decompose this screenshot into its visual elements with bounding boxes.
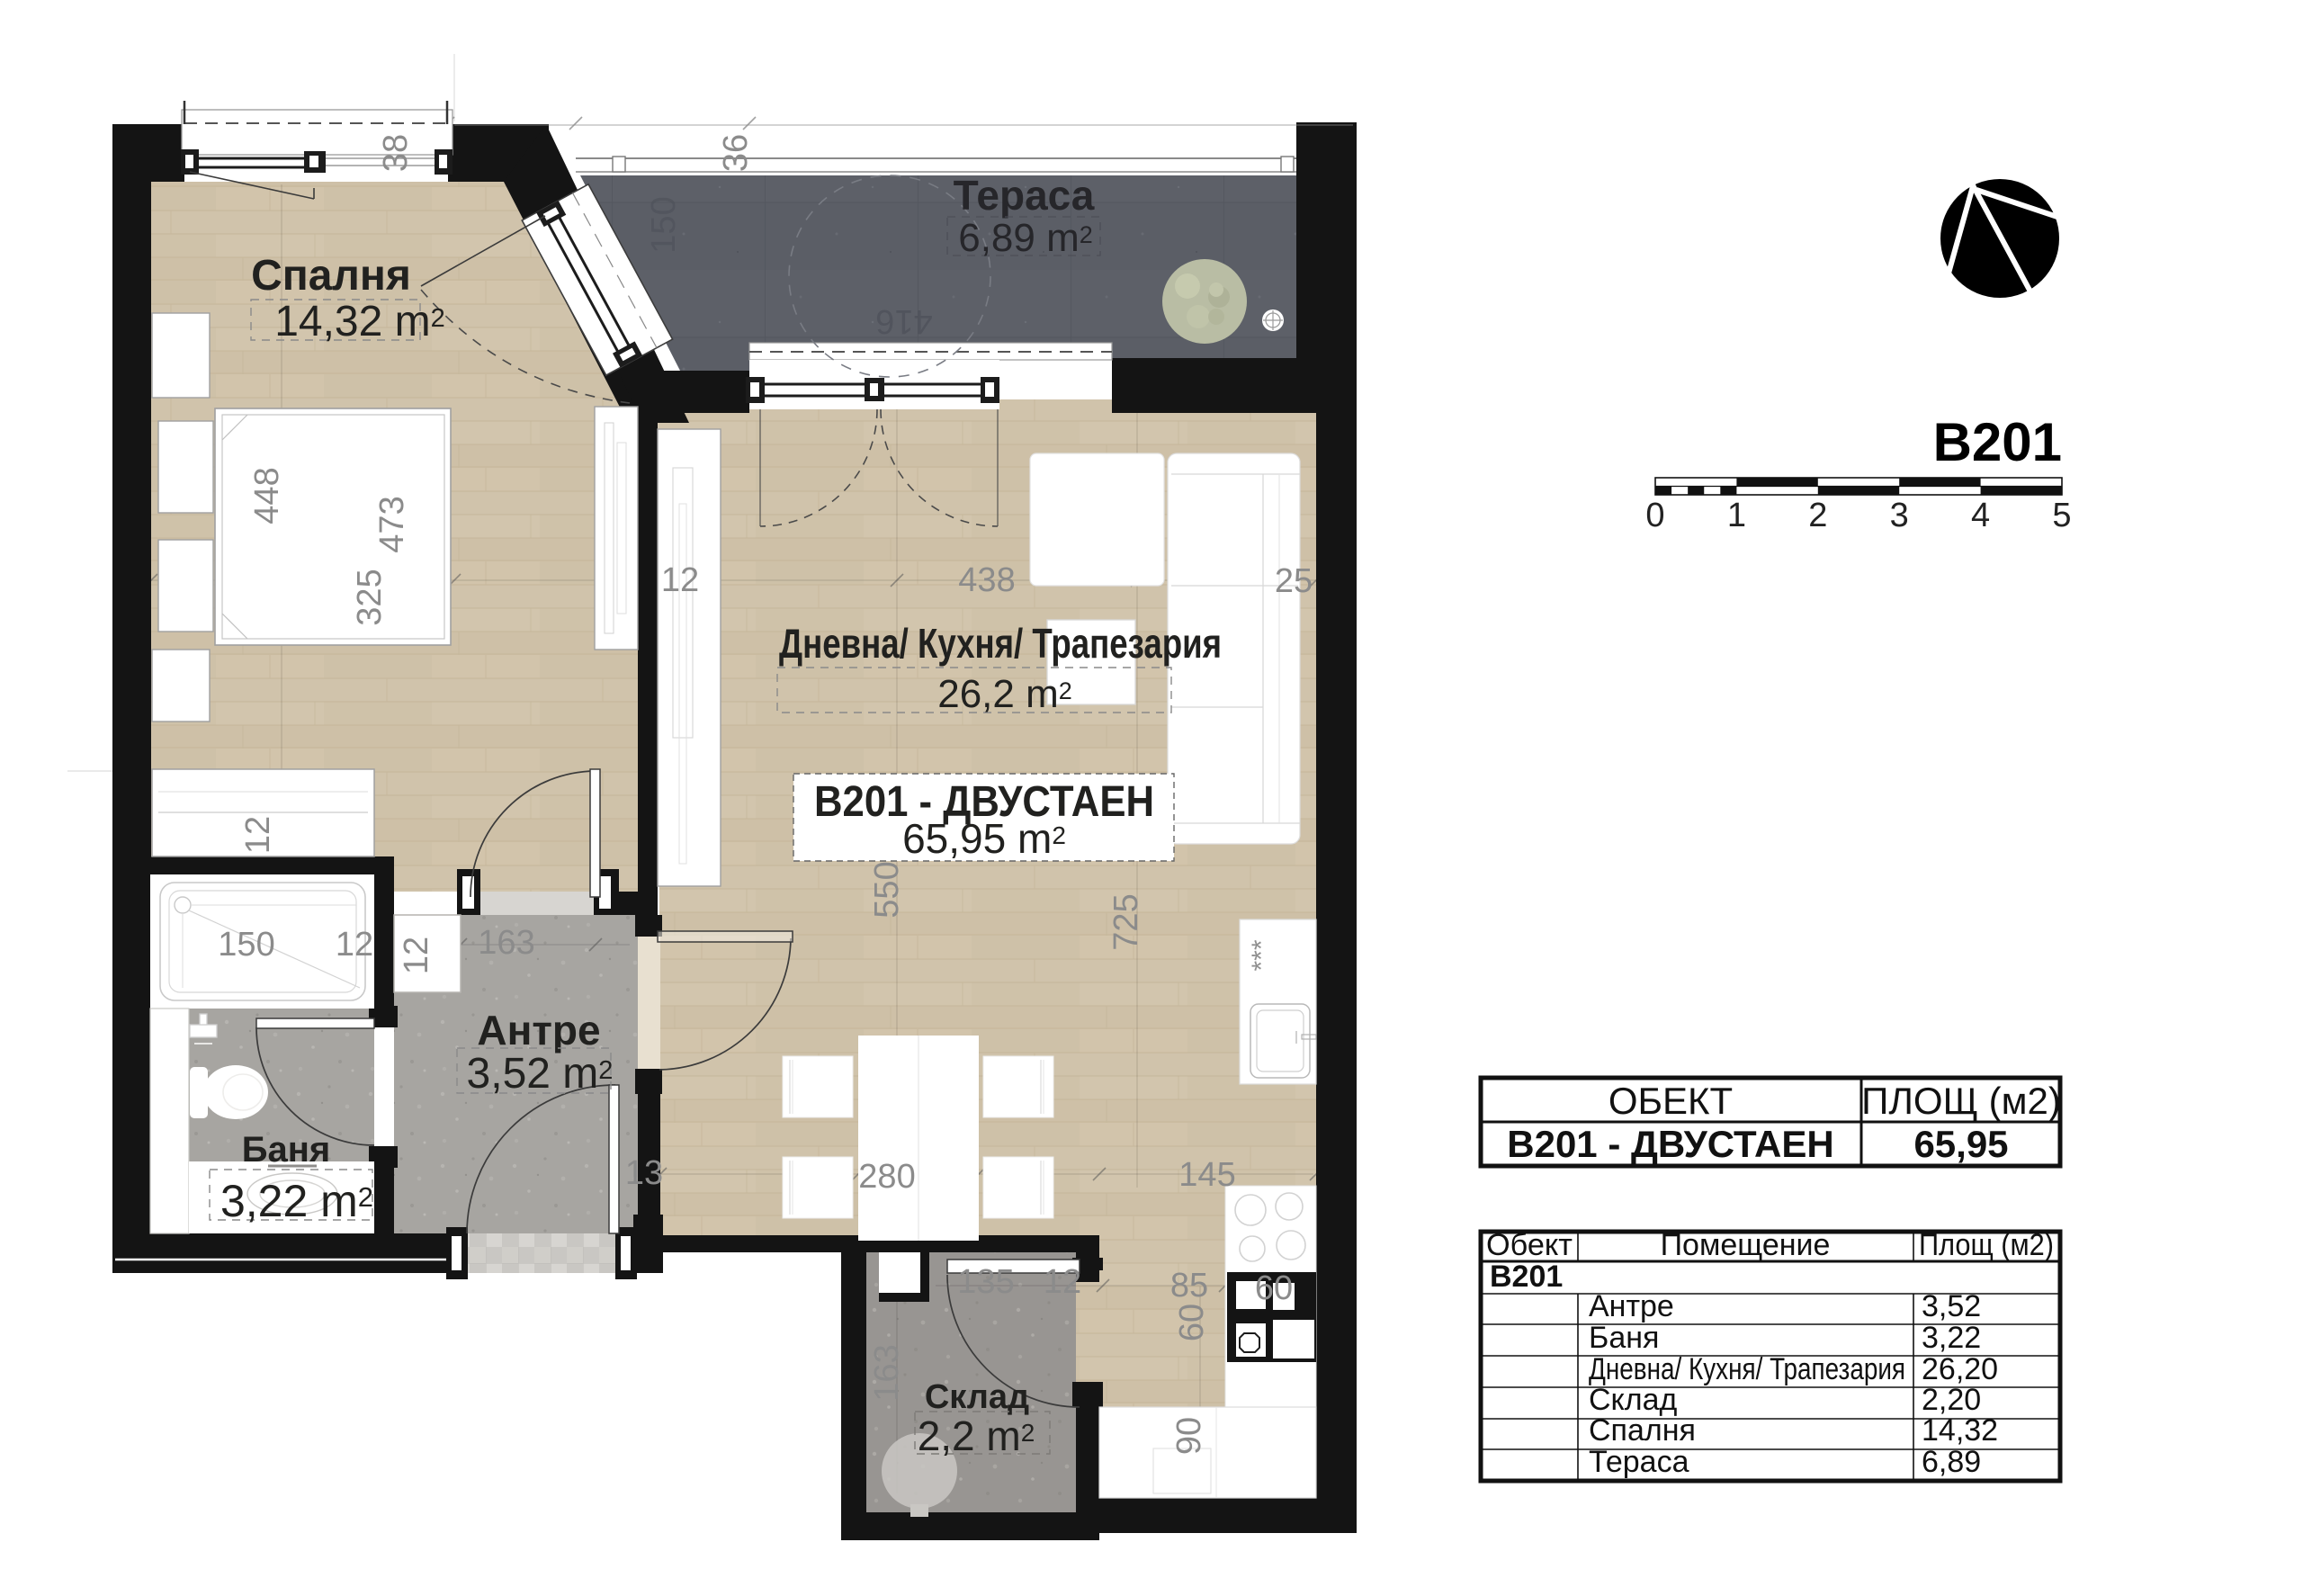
svg-text:438: 438 [958, 561, 1015, 599]
svg-text:3,52: 3,52 [1922, 1289, 1981, 1323]
svg-text:12: 12 [661, 561, 699, 599]
svg-text:Склад: Склад [1589, 1383, 1678, 1417]
svg-text:280: 280 [858, 1158, 915, 1196]
svg-text:12: 12 [1044, 1263, 1081, 1301]
svg-text:B201: B201 [1933, 412, 2062, 472]
svg-text:Тераса: Тераса [954, 172, 1095, 219]
svg-text:725: 725 [1107, 893, 1145, 950]
svg-text:3,52 m2: 3,52 m2 [467, 1050, 614, 1098]
svg-text:Обект: Обект [1486, 1228, 1573, 1262]
svg-text:6,89 m2: 6,89 m2 [958, 216, 1093, 260]
svg-text:ПЛОЩ (м2): ПЛОЩ (м2) [1861, 1080, 2061, 1122]
svg-text:Дневна/ Кухня/ Трапезария: Дневна/ Кухня/ Трапезария [1589, 1352, 1905, 1386]
svg-text:14,32: 14,32 [1922, 1413, 1998, 1448]
svg-text:60: 60 [1173, 1304, 1211, 1341]
svg-text:473: 473 [373, 496, 411, 552]
svg-text:65,95 m2: 65,95 m2 [902, 815, 1066, 862]
svg-text:26,2 m2: 26,2 m2 [937, 672, 1072, 716]
svg-text:2,20: 2,20 [1922, 1383, 1981, 1417]
svg-text:150: 150 [218, 926, 274, 964]
svg-text:145: 145 [1178, 1156, 1235, 1194]
svg-text:3: 3 [1890, 497, 1909, 534]
svg-text:12: 12 [398, 937, 435, 974]
svg-text:65,95: 65,95 [1913, 1123, 2008, 1165]
svg-text:0: 0 [1645, 497, 1664, 534]
svg-text:12: 12 [336, 926, 373, 964]
svg-text:5: 5 [2052, 497, 2071, 534]
svg-text:6,89: 6,89 [1922, 1445, 1981, 1479]
svg-text:85: 85 [1170, 1267, 1208, 1305]
svg-text:60: 60 [1255, 1269, 1293, 1307]
svg-text:2,2 m2: 2,2 m2 [918, 1412, 1035, 1459]
svg-text:ОБЕКТ: ОБЕКТ [1609, 1080, 1733, 1122]
svg-text:3,22: 3,22 [1922, 1321, 1981, 1355]
svg-text:Дневна/ Кухня/ Трапезария: Дневна/ Кухня/ Трапезария [779, 620, 1222, 667]
svg-text:Баня: Баня [1589, 1321, 1659, 1355]
svg-text:36: 36 [717, 134, 755, 172]
svg-text:448: 448 [248, 467, 286, 524]
svg-text:Антре: Антре [1589, 1289, 1674, 1323]
svg-text:26,20: 26,20 [1922, 1352, 1998, 1386]
svg-text:B201 - ДВУСТАЕН: B201 - ДВУСТАЕН [1507, 1123, 1833, 1165]
svg-text:Тераса: Тераса [1589, 1445, 1689, 1479]
svg-text:Баня: Баня [242, 1130, 331, 1170]
svg-text:Площ (м2): Площ (м2) [1919, 1228, 2054, 1262]
svg-text:Антре: Антре [477, 1007, 600, 1054]
svg-text:2: 2 [1808, 497, 1827, 534]
svg-text:Спалня: Спалня [251, 252, 411, 300]
svg-text:416: 416 [875, 302, 932, 340]
svg-text:4: 4 [1971, 497, 1990, 534]
svg-text:Помещение: Помещение [1661, 1228, 1831, 1262]
svg-text:12: 12 [239, 816, 277, 854]
svg-text:135: 135 [957, 1263, 1014, 1301]
svg-text:Спалня: Спалня [1589, 1413, 1696, 1448]
svg-text:163: 163 [478, 924, 534, 962]
svg-text:13: 13 [625, 1154, 663, 1192]
svg-text:14,32 m2: 14,32 m2 [274, 298, 445, 345]
svg-text:38: 38 [377, 134, 415, 172]
svg-text:25: 25 [1275, 562, 1313, 600]
svg-text:***: *** [1247, 939, 1277, 971]
svg-text:3,22 m2: 3,22 m2 [220, 1176, 373, 1226]
svg-text:150: 150 [645, 196, 683, 253]
svg-text:163: 163 [868, 1344, 906, 1401]
svg-text:B201: B201 [1490, 1260, 1563, 1294]
svg-text:325: 325 [351, 569, 389, 625]
svg-text:1: 1 [1727, 497, 1746, 534]
svg-text:90: 90 [1170, 1417, 1208, 1455]
svg-text:Склад: Склад [925, 1378, 1029, 1416]
svg-text:550: 550 [868, 861, 906, 918]
